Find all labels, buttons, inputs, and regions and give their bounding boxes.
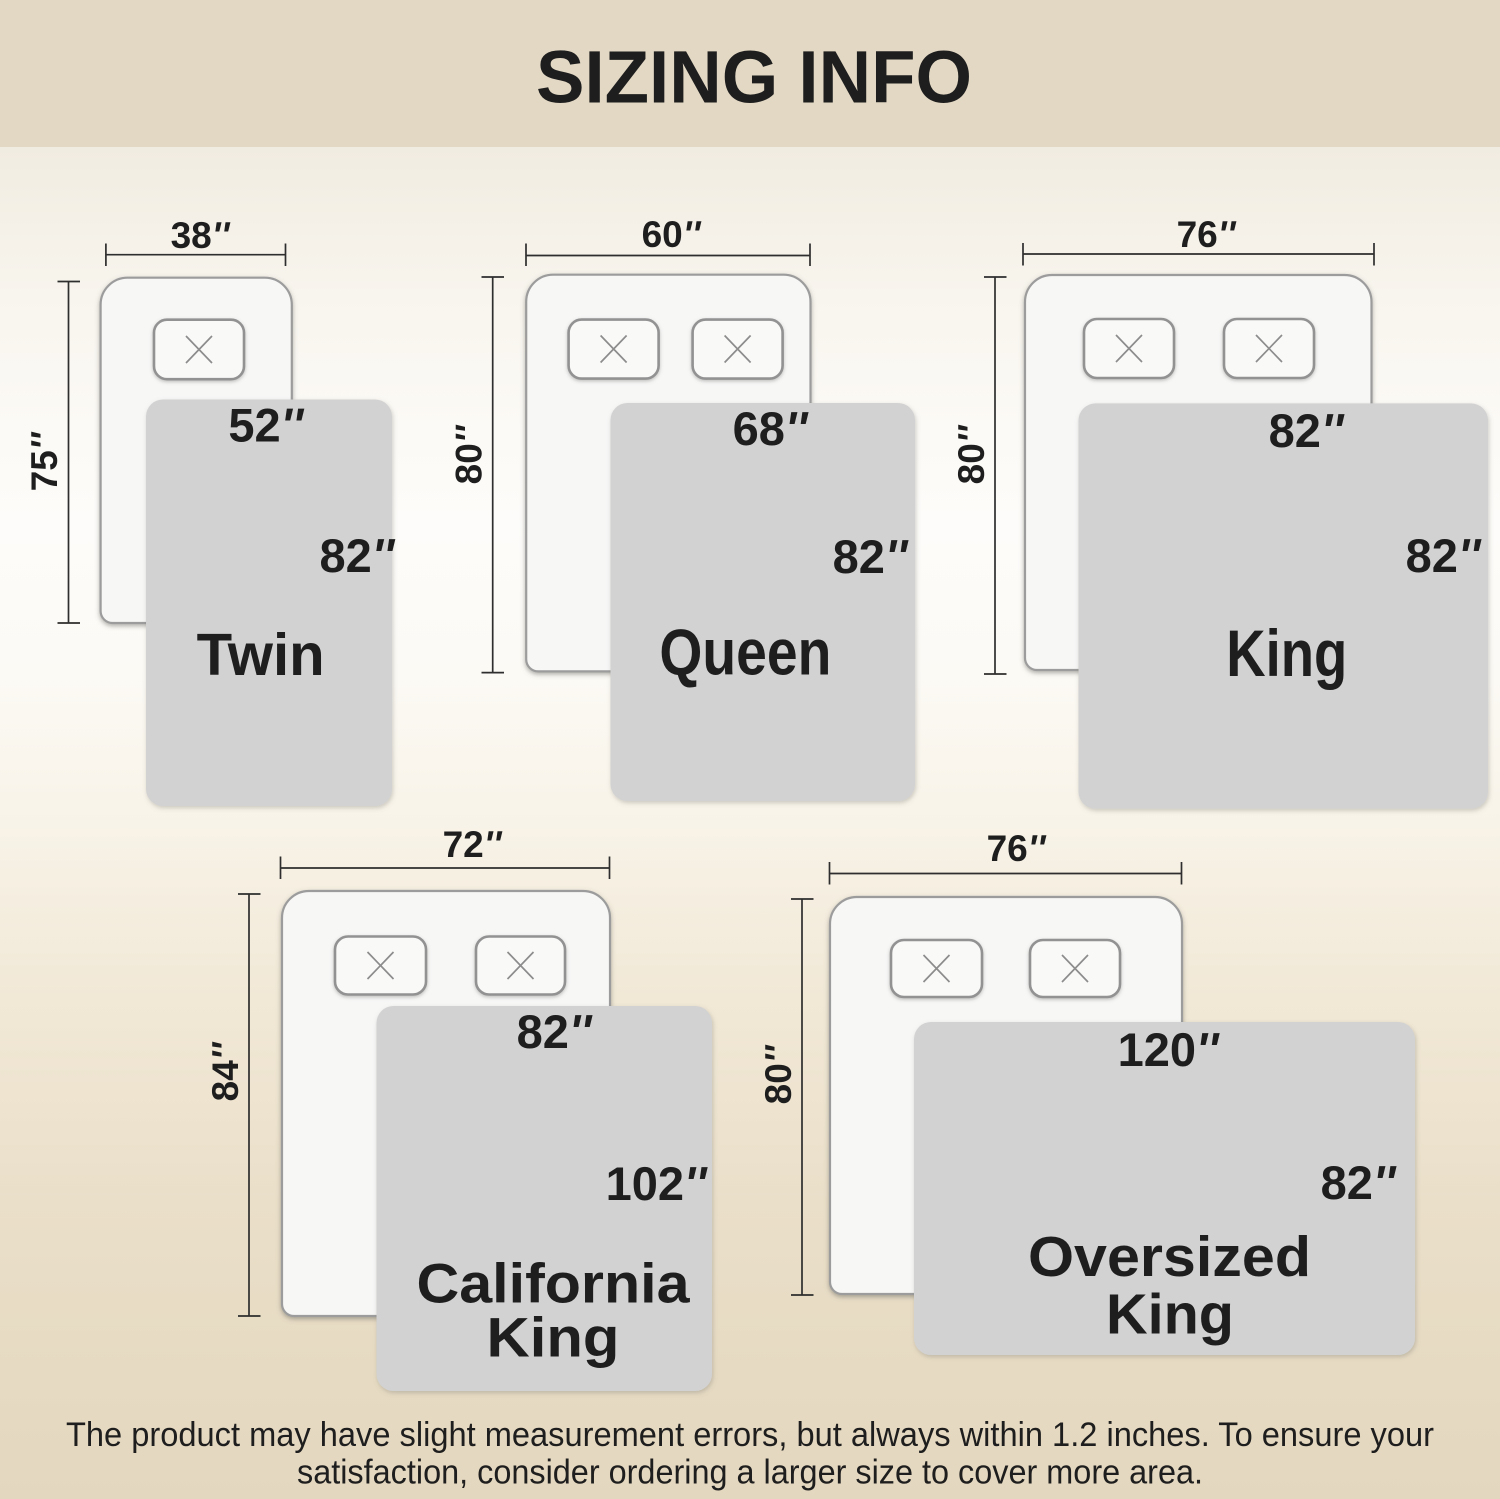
svg-text:82'': 82''	[1406, 529, 1482, 582]
svg-text:Twin: Twin	[197, 622, 325, 688]
svg-text:102'': 102''	[606, 1157, 709, 1210]
svg-text:80'': 80''	[758, 1044, 799, 1104]
svg-text:82'': 82''	[1269, 404, 1345, 457]
svg-text:Queen: Queen	[659, 616, 831, 689]
svg-text:82'': 82''	[319, 529, 395, 582]
svg-text:King: King	[487, 1306, 620, 1369]
svg-text:60'': 60''	[642, 214, 702, 255]
svg-text:The product may have slight me: The product may have slight measurement …	[66, 1416, 1434, 1454]
svg-text:82'': 82''	[517, 1005, 593, 1058]
svg-text:80'': 80''	[951, 424, 992, 484]
svg-text:68'': 68''	[733, 402, 809, 455]
svg-text:satisfaction, consider orderin: satisfaction, consider ordering a larger…	[297, 1454, 1203, 1492]
svg-text:120'': 120''	[1118, 1023, 1221, 1076]
svg-text:72'': 72''	[443, 824, 503, 865]
svg-text:84'': 84''	[205, 1041, 246, 1101]
svg-text:King: King	[1226, 616, 1347, 690]
svg-text:82'': 82''	[833, 530, 909, 583]
svg-text:52'': 52''	[228, 399, 304, 452]
svg-text:80'': 80''	[449, 424, 490, 484]
svg-text:82'': 82''	[1321, 1156, 1397, 1209]
svg-text:76'': 76''	[987, 828, 1047, 869]
svg-text:75'': 75''	[24, 431, 65, 491]
svg-text:King: King	[1106, 1283, 1234, 1347]
svg-text:76'': 76''	[1177, 214, 1237, 255]
svg-text:SIZING INFO: SIZING INFO	[536, 36, 972, 119]
svg-text:Oversized: Oversized	[1028, 1225, 1311, 1289]
svg-text:38'': 38''	[171, 215, 231, 256]
